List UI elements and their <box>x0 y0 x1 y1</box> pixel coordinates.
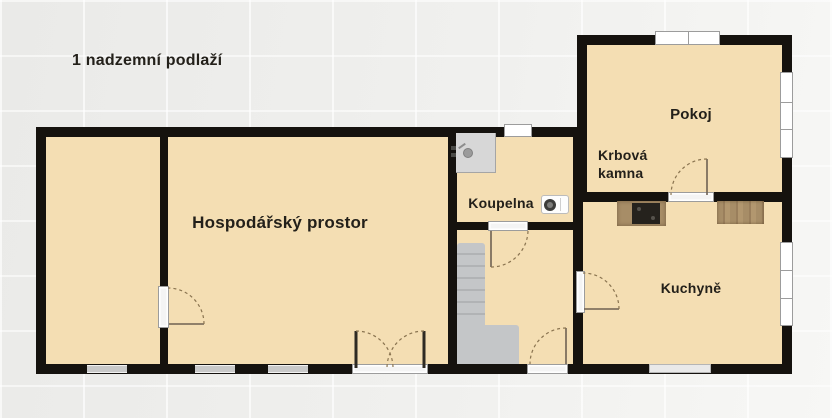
window-icon-hosp-bottom-1 <box>195 365 235 373</box>
stairs-landing <box>457 325 519 364</box>
washing-machine-icon <box>541 195 569 214</box>
door-frame-kuchyne <box>576 271 585 313</box>
window-mullion <box>781 102 792 103</box>
window-icon-kuchyne-right <box>780 242 793 326</box>
room-label-kuchyne: Kuchyně <box>661 280 722 296</box>
washer-panel-divider <box>560 198 561 211</box>
countertop-icon <box>717 201 764 224</box>
washer-door-icon <box>544 199 556 211</box>
stove-icon <box>617 201 666 226</box>
window-icon-pokoj-top <box>655 31 720 45</box>
shower-icon <box>456 133 496 173</box>
room-label-pokoj: Pokoj <box>670 106 712 123</box>
window-mullion <box>688 32 689 44</box>
window-icon-hosp-bottom-2 <box>268 365 308 373</box>
room-label-koupelna: Koupelna <box>468 195 533 211</box>
room-storage-left <box>46 137 160 364</box>
door-frame-leftroom <box>158 286 169 328</box>
floorplan-canvas: 1 nadzemní podlaží <box>0 0 832 418</box>
window-icon-kuchyne-bottom <box>649 364 711 373</box>
room-label-hospodarsky-prostor: Hospodářský prostor <box>192 213 368 233</box>
window-icon-leftroom-bottom <box>87 365 127 373</box>
wall-leftroom-divider <box>160 127 168 374</box>
label-krbova-kamna: Krbová kamna <box>598 146 647 182</box>
window-mullion <box>781 129 792 130</box>
floor-title: 1 nadzemní podlaží <box>72 52 222 70</box>
wall-left-outer <box>36 127 46 374</box>
window-mullion <box>781 298 792 299</box>
label-krbova-kamna-line1: Krbová <box>598 146 647 164</box>
stairs-icon <box>457 243 485 327</box>
room-hospodarsky-prostor <box>168 137 448 364</box>
label-krbova-kamna-line2: kamna <box>598 164 647 182</box>
shower-head-icon <box>463 148 473 158</box>
stove-cooktop-icon <box>632 203 660 224</box>
window-icon-koupelna-top <box>504 124 532 137</box>
door-threshold-entrance <box>527 364 568 374</box>
wall-hall-kitchen-divider <box>573 127 583 374</box>
window-icon-pokoj-right <box>780 72 793 158</box>
faucet-icon <box>451 146 456 150</box>
faucet-icon <box>451 153 456 157</box>
door-frame-koupelna <box>488 221 528 231</box>
door-threshold-double-door <box>352 364 428 374</box>
door-frame-pokoj <box>668 192 714 202</box>
window-mullion <box>781 270 792 271</box>
